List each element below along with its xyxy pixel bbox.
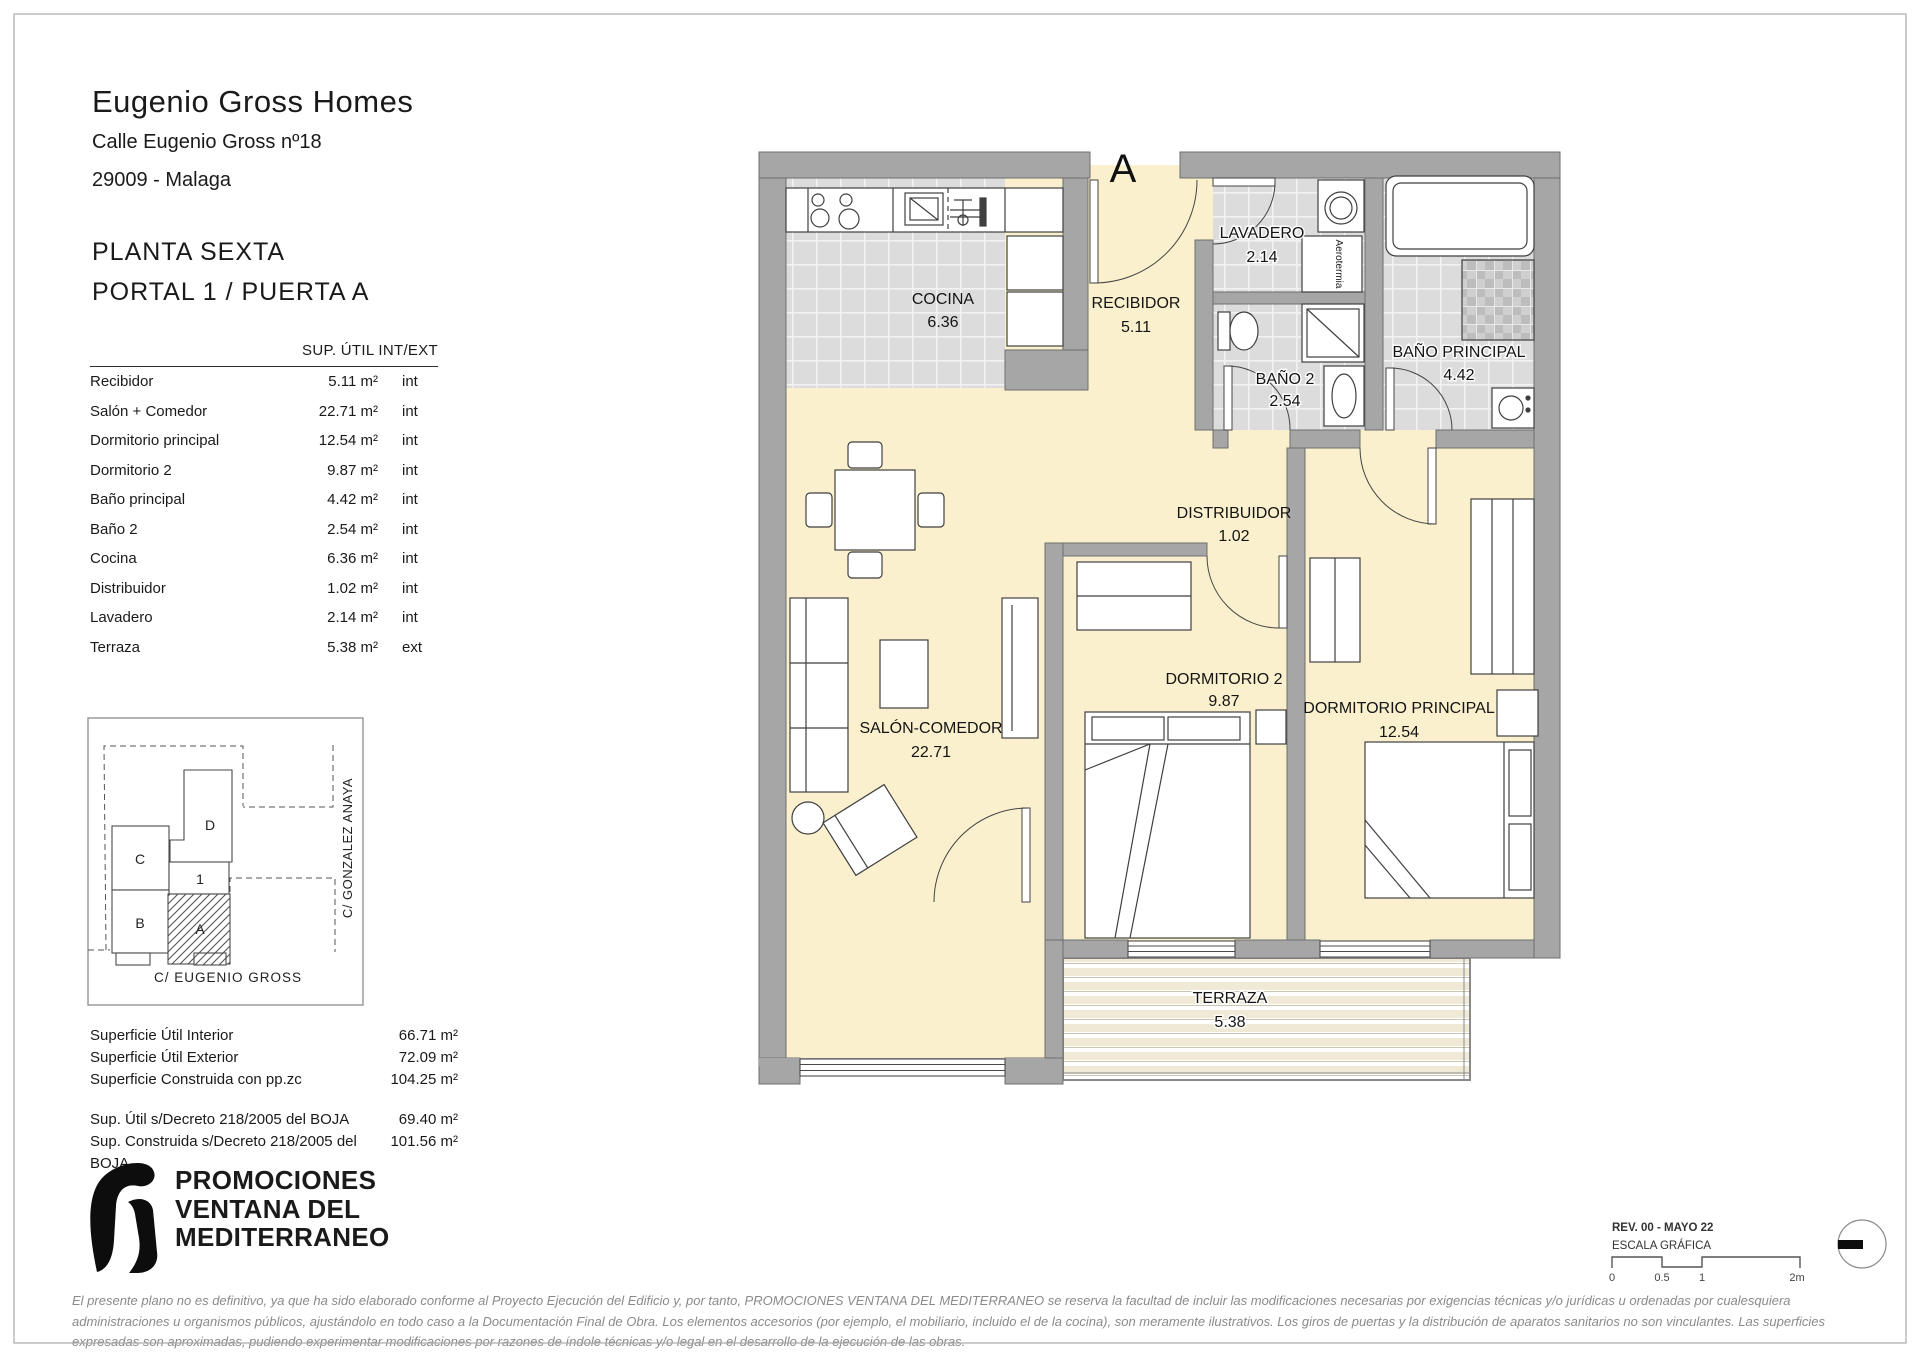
room-name: TERRAZA [1193,990,1268,1007]
sofa [790,598,848,792]
developer-logo-icon [90,1163,157,1273]
room-area: 2.54 [1269,393,1300,410]
entrance-letter: A [1110,147,1137,191]
aerotermia-unit [1302,236,1362,292]
scale-tick: 2m [1789,1272,1804,1284]
revision-label: REV. 00 - MAYO 22 [1612,1222,1713,1234]
room-name: COCINA [912,291,975,308]
room-name: BAÑO 2 [1256,368,1315,388]
scale-tick: 1 [1699,1272,1705,1284]
floor-plan-drawing: COCINA 6.36 RECIBIDOR 5.11 LAVADERO 2.14… [0,0,1920,1357]
room-area: 22.71 [911,744,951,761]
room-name: DORMITORIO 2 [1165,671,1282,688]
room-name: BAÑO PRINCIPAL [1392,341,1525,361]
living-window [800,1059,1005,1076]
scale-tick: 0 [1609,1272,1615,1284]
bathtub [1386,176,1534,256]
unit-label: B [135,915,144,931]
street-label-bottom: C/ EUGENIO GROSS [154,970,302,985]
room-area: 12.54 [1379,724,1419,741]
room-area: 4.42 [1443,367,1474,384]
apartment-plan: COCINA 6.36 RECIBIDOR 5.11 LAVADERO 2.14… [759,147,1560,1084]
aerotermia-label: Aerotermia [1333,240,1344,289]
room-area: 5.38 [1214,1014,1245,1031]
scale-title: ESCALA GRÁFICA [1612,1239,1711,1252]
main-bedroom-window [1320,941,1430,957]
pouf [792,802,824,834]
room-area: 6.36 [927,314,958,331]
washing-machine [1318,180,1364,232]
unit-label: C [135,851,145,867]
room-area: 2.14 [1246,249,1277,266]
desk [1077,562,1191,630]
terrace-deck [1063,958,1470,1080]
sink [1324,366,1364,426]
kitchen-counter [786,188,1063,232]
room-area: 1.02 [1218,528,1249,545]
nightstand [1256,710,1286,744]
unit-notch [194,953,226,965]
coffee-table [880,640,928,708]
site-plan: D C 1 B A C/ GONZALEZ ANAYA C/ EUGENIO G… [88,718,363,1005]
toilet [1218,312,1258,350]
room-name: DISTRIBUIDOR [1177,505,1292,522]
bedroom2-window [1128,941,1235,957]
shower-tiled [1462,260,1534,340]
unit-label: D [205,817,215,833]
room-name: RECIBIDOR [1092,295,1181,312]
unit-label: A [195,921,205,937]
sink [1492,388,1534,428]
room-name: DORMITORIO PRINCIPAL [1303,700,1495,717]
wardrobe [1471,499,1534,674]
shower [1302,304,1364,362]
room-name: SALÓN-COMEDOR [859,718,1002,737]
graphic-scale-bar: 0 0.5 1 2m [1609,1257,1805,1284]
orientation-marker-icon [1838,1220,1886,1268]
room-area: 5.11 [1121,319,1151,336]
room-name: LAVADERO [1220,225,1305,242]
title-block: REV. 00 - MAYO 22 ESCALA GRÁFICA 0 0.5 1… [1609,1220,1886,1284]
bed-double [1365,742,1534,898]
unit-label: 1 [196,871,204,887]
street-label-right: C/ GONZALEZ ANAYA [340,778,355,918]
scale-tick: 0.5 [1654,1272,1669,1284]
room-area: 9.87 [1208,693,1239,710]
bed-double [1085,712,1250,938]
nightstand [1497,690,1538,736]
tv-unit [1002,598,1038,738]
wardrobe [1310,558,1360,662]
unit-notch [116,953,150,965]
